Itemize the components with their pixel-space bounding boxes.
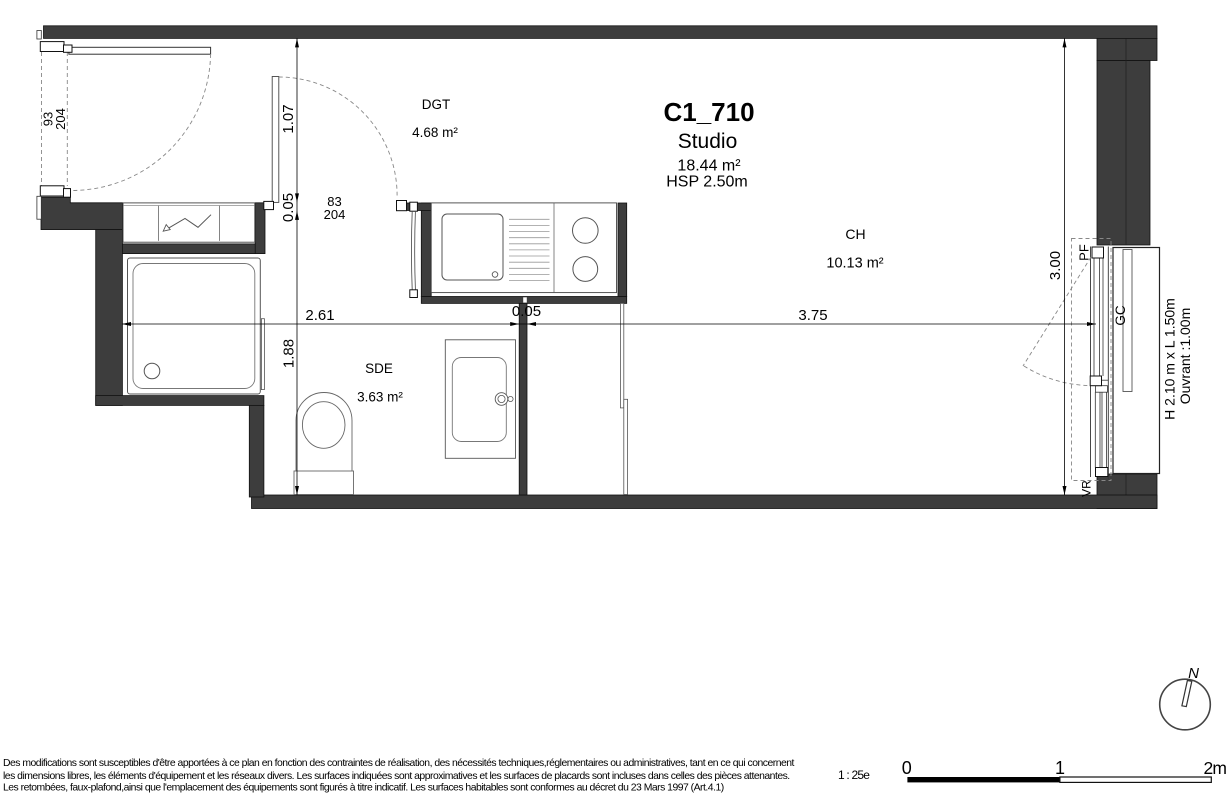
- svg-text:1.88: 1.88: [280, 339, 297, 368]
- svg-text:GC: GC: [1113, 305, 1128, 326]
- svg-text:1 : 25e: 1 : 25e: [838, 768, 870, 782]
- svg-text:0.05: 0.05: [280, 193, 297, 222]
- svg-text:4.68 m²: 4.68 m²: [412, 125, 458, 140]
- svg-text:10.13 m²: 10.13 m²: [826, 256, 883, 272]
- svg-text:2.61: 2.61: [305, 307, 334, 324]
- svg-text:204: 204: [324, 207, 346, 222]
- svg-text:HSP 2.50m: HSP 2.50m: [666, 174, 748, 191]
- svg-text:204: 204: [53, 108, 68, 130]
- svg-text:SDE: SDE: [365, 361, 393, 376]
- svg-text:0.05: 0.05: [512, 303, 541, 320]
- svg-text:1: 1: [1055, 758, 1065, 778]
- svg-text:Ouvrant :1.00m: Ouvrant :1.00m: [1177, 308, 1193, 405]
- svg-text:DGT: DGT: [422, 97, 451, 112]
- svg-text:Des modifications sont suscept: Des modifications sont susceptibles d'êt…: [3, 758, 795, 769]
- svg-text:les dimensions libres, les élé: les dimensions libres, les éléments d'éq…: [3, 771, 790, 782]
- svg-text:H 2.10 m x L 1.50m: H 2.10 m x L 1.50m: [1161, 298, 1177, 420]
- svg-text:N: N: [1188, 665, 1199, 682]
- svg-text:3.00: 3.00: [1047, 251, 1064, 280]
- svg-text:3.63 m²: 3.63 m²: [357, 390, 403, 405]
- svg-text:C1_710: C1_710: [663, 97, 754, 127]
- svg-text:2m: 2m: [1204, 758, 1227, 778]
- svg-text:0: 0: [902, 758, 912, 778]
- svg-text:Les retombées, faux-plafond,ai: Les retombées, faux-plafond,ainsi que l'…: [3, 783, 724, 794]
- svg-text:VR: VR: [1080, 480, 1094, 497]
- svg-text:18.44 m²: 18.44 m²: [677, 158, 741, 175]
- svg-text:PF: PF: [1077, 244, 1092, 261]
- svg-text:3.75: 3.75: [798, 307, 827, 324]
- svg-text:Studio: Studio: [678, 130, 738, 153]
- svg-text:1.07: 1.07: [280, 104, 297, 133]
- svg-text:CH: CH: [845, 226, 865, 242]
